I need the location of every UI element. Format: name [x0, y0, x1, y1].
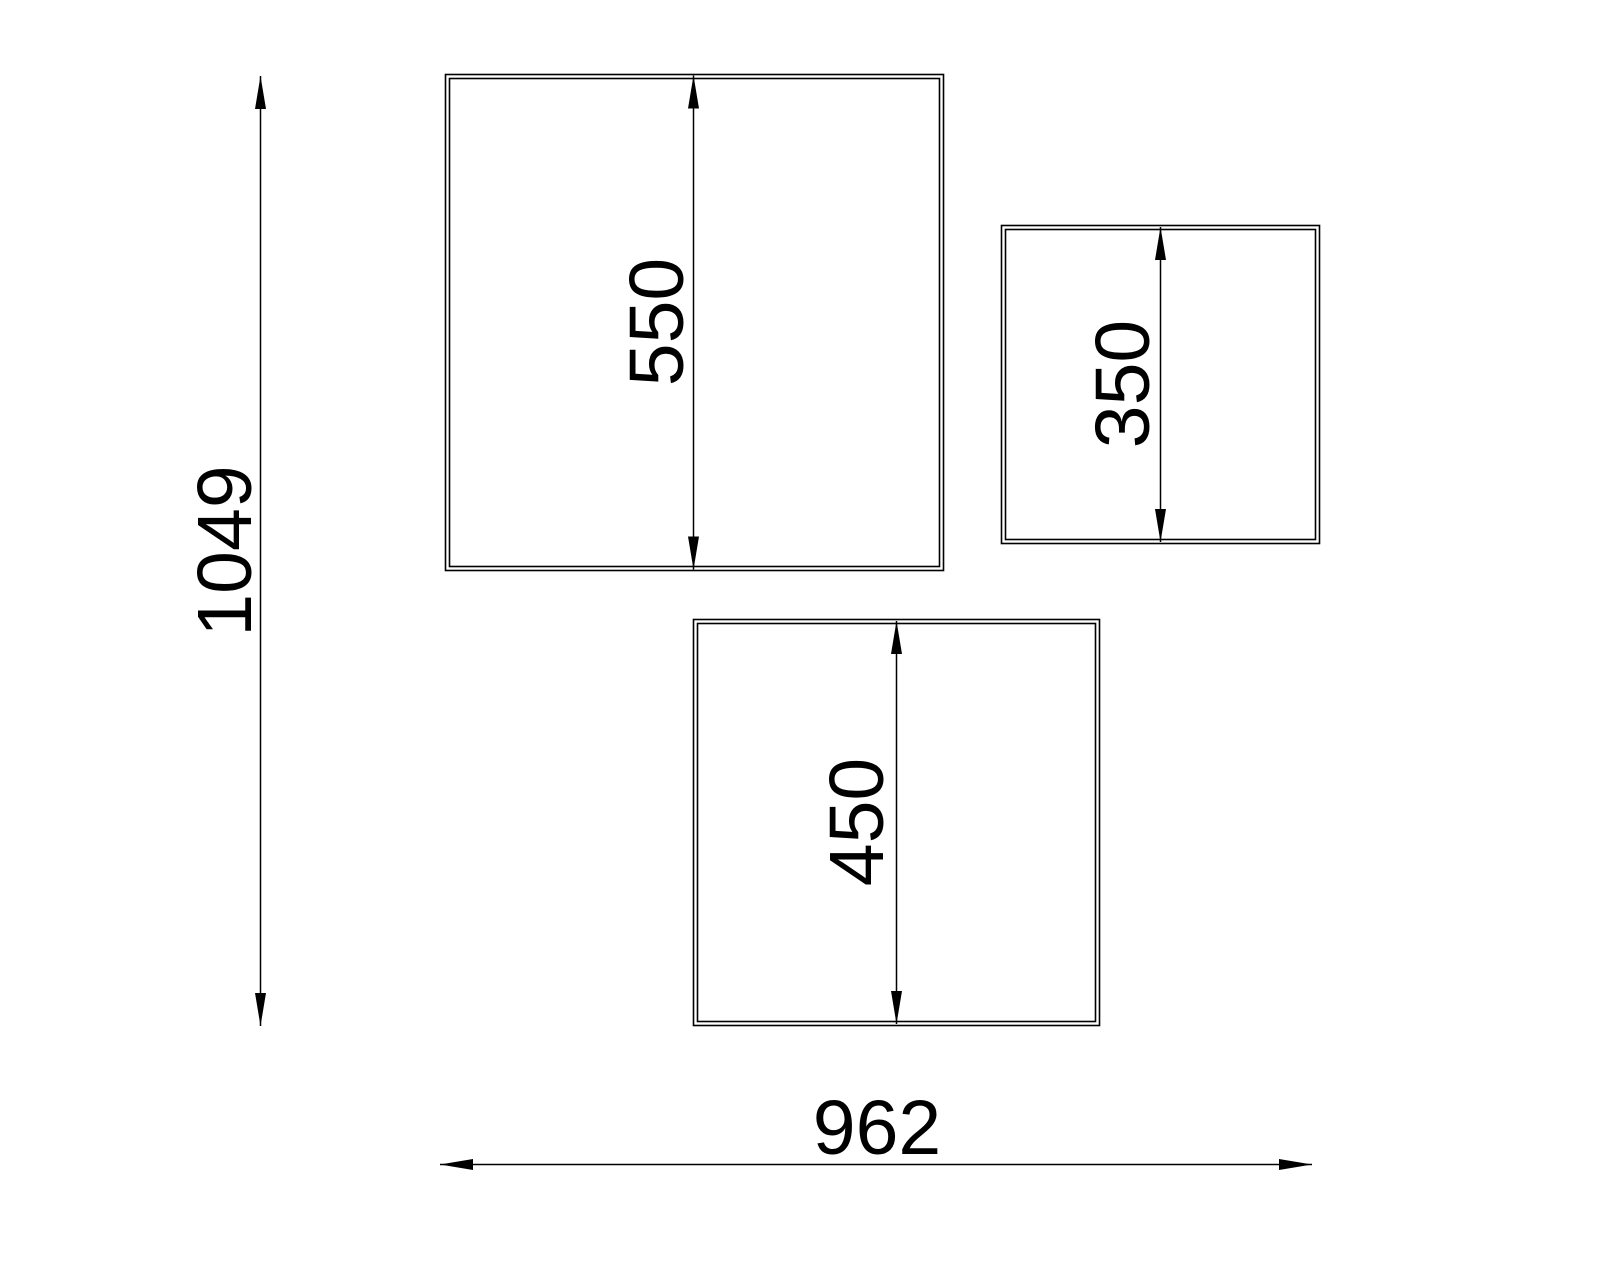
dim-panel-small-height: 350 — [1080, 227, 1166, 542]
dim-panel-medium-height: 450 — [814, 621, 902, 1024]
dim-panel-large-height: 550 — [614, 76, 700, 570]
dim-overall-height-label: 1049 — [182, 465, 268, 636]
dim-overall-height-arrow-down-icon — [255, 993, 266, 1026]
dim-overall-width-arrow-left-icon — [440, 1159, 473, 1170]
dim-panel-large-arrow-up-icon — [688, 76, 699, 109]
dim-overall-width-label: 962 — [813, 1085, 941, 1171]
dim-panel-small-arrow-up-icon — [1155, 227, 1166, 260]
drawing-canvas: 1049 550 350 450 962 — [0, 0, 1600, 1280]
dim-overall-height-arrow-up-icon — [255, 76, 266, 109]
cad-drawing: 1049 550 350 450 962 — [0, 0, 1600, 1280]
dim-panel-large-label: 550 — [614, 258, 700, 386]
dim-panel-small-arrow-down-icon — [1155, 509, 1166, 542]
dim-overall-width: 962 — [440, 1085, 1312, 1171]
dim-overall-width-arrow-right-icon — [1279, 1159, 1312, 1170]
dim-panel-large-arrow-down-icon — [688, 537, 699, 570]
dim-panel-medium-label: 450 — [814, 758, 900, 886]
dim-panel-medium-arrow-up-icon — [891, 621, 902, 654]
dim-panel-small-label: 350 — [1080, 320, 1166, 448]
dim-panel-medium-arrow-down-icon — [891, 991, 902, 1024]
dim-overall-height: 1049 — [182, 76, 268, 1026]
